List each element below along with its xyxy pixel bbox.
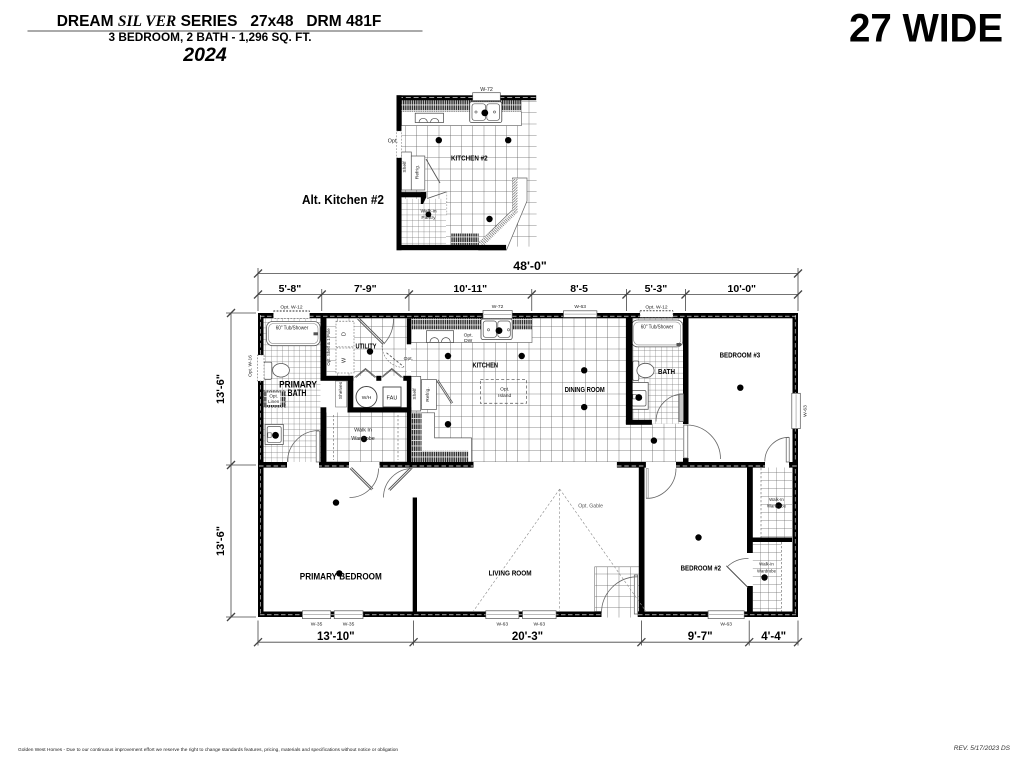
svg-text:Wardrobe: Wardrobe [767,504,787,509]
svg-text:13'-6": 13'-6" [215,526,227,556]
svg-text:KITCHEN #2: KITCHEN #2 [451,154,488,163]
svg-text:Walk In: Walk In [354,428,372,434]
svg-text:KITCHEN: KITCHEN [473,360,499,369]
svg-text:4'-4": 4'-4" [761,631,786,643]
svg-text:DREAM SIL VER SERIES 27x48: DREAM SIL VER SERIES 27x48 DRM 481F [57,13,382,30]
svg-text:Opt.: Opt. [269,394,278,399]
svg-text:Shelves: Shelves [338,381,344,399]
svg-text:Opt.: Opt. [464,332,473,338]
svg-text:BEDROOM #2: BEDROOM #2 [681,566,721,573]
svg-text:Shelf: Shelf [402,161,408,173]
svg-text:D: D [342,332,348,336]
svg-text:Alt. Kitchen #2: Alt. Kitchen #2 [302,192,384,207]
svg-text:BEDROOM #3: BEDROOM #3 [720,353,761,360]
svg-text:9'-7": 9'-7" [688,631,713,643]
svg-text:Island: Island [498,393,511,399]
svg-text:W-35: W-35 [343,622,355,628]
svg-text:W-63: W-63 [574,304,586,310]
svg-text:BATH: BATH [658,367,675,376]
svg-text:Linen: Linen [268,399,280,404]
svg-text:Opt. W-12: Opt. W-12 [645,305,667,311]
svg-text:5'-3": 5'-3" [645,283,668,295]
svg-text:W-63: W-63 [720,622,732,628]
svg-text:W-72: W-72 [492,304,504,310]
svg-text:DINING ROOM: DINING ROOM [565,385,605,394]
svg-text:7'-9": 7'-9" [354,283,377,295]
svg-text:Opt. W-12: Opt. W-12 [280,305,302,311]
svg-text:8'-5: 8'-5 [570,283,588,295]
svg-text:UTILITY: UTILITY [356,342,377,351]
svg-text:Walk-In: Walk-In [769,497,784,502]
svg-text:Opt.: Opt. [388,138,398,144]
svg-text:FAU: FAU [387,396,398,402]
svg-text:10'-0": 10'-0" [728,283,757,295]
svg-text:5'-8": 5'-8" [279,283,302,295]
svg-text:PRIMARY BEDROOM: PRIMARY BEDROOM [300,572,382,582]
svg-text:60" Tub/Shower: 60" Tub/Shower [641,324,674,330]
svg-text:3 BEDROOM, 2 BATH - 1,296 SQ.: 3 BEDROOM, 2 BATH - 1,296 SQ. FT. [109,30,312,44]
svg-text:W/H: W/H [362,395,372,401]
svg-text:W-63: W-63 [533,622,545,628]
svg-text:60" Tub/Shower: 60" Tub/Shower [276,326,309,332]
svg-text:Opt.: Opt. [500,386,509,392]
svg-text:Opt. W-16: Opt. W-16 [248,355,254,377]
svg-text:W-35: W-35 [311,622,323,628]
svg-text:BATH: BATH [288,388,307,398]
svg-text:48'-0": 48'-0" [513,259,547,273]
svg-text:W-63: W-63 [496,622,508,628]
svg-text:2024: 2024 [182,44,227,66]
svg-text:Opt.: Opt. [404,356,413,362]
svg-text:Opt. Shelf & 1 Pole: Opt. Shelf & 1 Pole [326,328,331,366]
svg-text:20'-3": 20'-3" [512,631,543,643]
svg-text:Shelf: Shelf [412,388,418,400]
svg-text:Opt. Gable: Opt. Gable [578,504,603,510]
svg-text:Golden West Homes - Due to our: Golden West Homes - Due to our continuou… [18,747,398,753]
svg-text:DW: DW [464,338,473,344]
svg-text:13'-6": 13'-6" [215,374,227,404]
svg-text:REV. 5/17/2023 DS: REV. 5/17/2023 DS [954,745,1011,752]
svg-text:Refrig.: Refrig. [414,165,420,179]
svg-text:10'-11": 10'-11" [453,283,487,295]
svg-text:13'-10": 13'-10" [317,631,355,643]
svg-text:27 WIDE: 27 WIDE [849,7,1003,51]
svg-text:Refrig.: Refrig. [425,387,431,401]
svg-text:W-72: W-72 [480,87,493,93]
svg-text:Wardrobe: Wardrobe [757,569,777,574]
svg-text:W-63: W-63 [803,405,809,417]
svg-text:Wardrobe: Wardrobe [351,436,374,442]
svg-text:Walk-In: Walk-In [759,562,774,567]
svg-text:LIVING ROOM: LIVING ROOM [489,569,532,578]
